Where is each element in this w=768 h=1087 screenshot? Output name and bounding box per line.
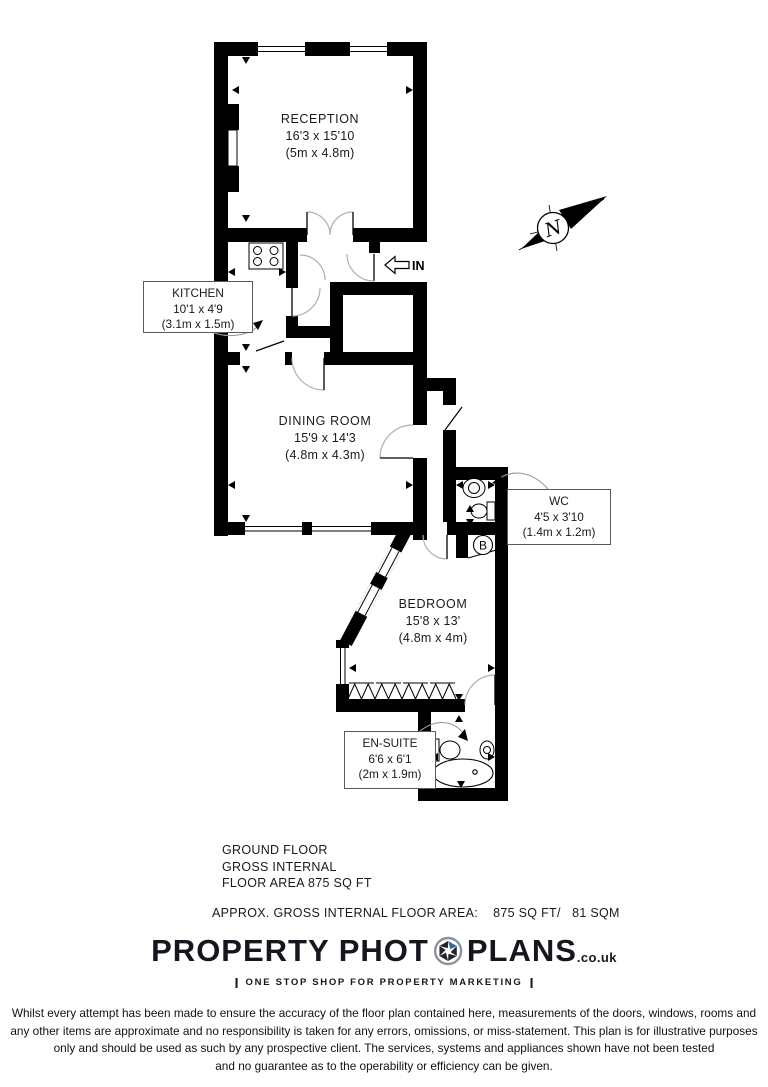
compass-icon: N <box>519 196 607 251</box>
floor-summary: GROUND FLOOR GROSS INTERNAL FLOOR AREA 8… <box>222 842 372 892</box>
room-name: DINING ROOM <box>245 413 405 430</box>
room-size-metric: (5m x 4.8m) <box>240 145 400 162</box>
wc-label-box: WC 4'5 x 3'10 (1.4m x 1.2m) <box>507 489 611 545</box>
dining-room-label: DINING ROOM 15'9 x 14'3 (4.8m x 4.3m) <box>245 413 405 464</box>
room-size-metric: (4.8m x 4.3m) <box>245 447 405 464</box>
room-name: BEDROOM <box>353 596 513 613</box>
disclaimer-line: any other items are approximate and no r… <box>0 1023 768 1041</box>
tagline-bar-left <box>236 978 238 988</box>
brand-name-left: PROPERTY PHOT <box>151 933 429 969</box>
approx-area-line: APPROX. GROSS INTERNAL FLOOR AREA: 875 S… <box>212 906 620 920</box>
entrance-arrow-icon: IN <box>385 257 425 274</box>
boiler-icon: B <box>474 536 493 555</box>
floorplan-drawing: B <box>0 0 768 1087</box>
ensuite-label-box: EN-SUITE 6'6 x 6'1 (2m x 1.9m) <box>344 731 436 789</box>
room-size-imperial: 10'1 x 4'9 <box>144 302 252 318</box>
room-name: WC <box>508 494 610 510</box>
disclaimer-text: Whilst every attempt has been made to en… <box>0 1005 768 1075</box>
entrance-label: IN <box>412 259 425 273</box>
brand-domain-suffix: .co.uk <box>577 950 617 969</box>
tagline-text: ONE STOP SHOP FOR PROPERTY MARKETING <box>246 977 523 988</box>
room-name: EN-SUITE <box>345 736 435 752</box>
floor-title-line: GROSS INTERNAL <box>222 859 372 876</box>
room-size-imperial: 6'6 x 6'1 <box>345 752 435 768</box>
room-name: RECEPTION <box>240 111 400 128</box>
tagline-bar-right <box>530 978 532 988</box>
room-name: KITCHEN <box>144 286 252 302</box>
boiler-label: B <box>479 539 487 553</box>
camera-aperture-icon <box>432 935 464 967</box>
floorplan-page: B <box>0 0 768 1087</box>
disclaimer-line: and no guarantee as to the operability o… <box>0 1058 768 1076</box>
disclaimer-line: only and should be used as such by any p… <box>0 1040 768 1058</box>
room-size-imperial: 15'9 x 14'3 <box>245 430 405 447</box>
room-size-imperial: 4'5 x 3'10 <box>508 510 610 526</box>
brand-tagline: ONE STOP SHOP FOR PROPERTY MARKETING <box>236 977 533 988</box>
stove-icon <box>249 243 283 269</box>
room-size-imperial: 16'3 x 15'10 <box>240 128 400 145</box>
room-size-metric: (4.8m x 4m) <box>353 630 513 647</box>
room-size-metric: (2m x 1.9m) <box>345 767 435 783</box>
wc-toilet-icon <box>471 502 495 520</box>
disclaimer-line: Whilst every attempt has been made to en… <box>0 1005 768 1023</box>
reception-label: RECEPTION 16'3 x 15'10 (5m x 4.8m) <box>240 111 400 162</box>
wardrobe-icons <box>348 683 456 699</box>
room-size-imperial: 15'8 x 13' <box>353 613 513 630</box>
room-size-metric: (1.4m x 1.2m) <box>508 525 610 541</box>
wc-sink-icon <box>463 479 485 498</box>
bedroom-label: BEDROOM 15'8 x 13' (4.8m x 4m) <box>353 596 513 647</box>
brand-logo: PROPERTY PHOT PLANS .co.uk <box>151 933 617 969</box>
room-size-metric: (3.1m x 1.5m) <box>144 317 252 333</box>
floor-title-line: FLOOR AREA 875 SQ FT <box>222 875 372 892</box>
kitchen-label-box: KITCHEN 10'1 x 4'9 (3.1m x 1.5m) <box>143 281 253 333</box>
floor-title-line: GROUND FLOOR <box>222 842 372 859</box>
brand-name-right: PLANS <box>467 933 577 969</box>
